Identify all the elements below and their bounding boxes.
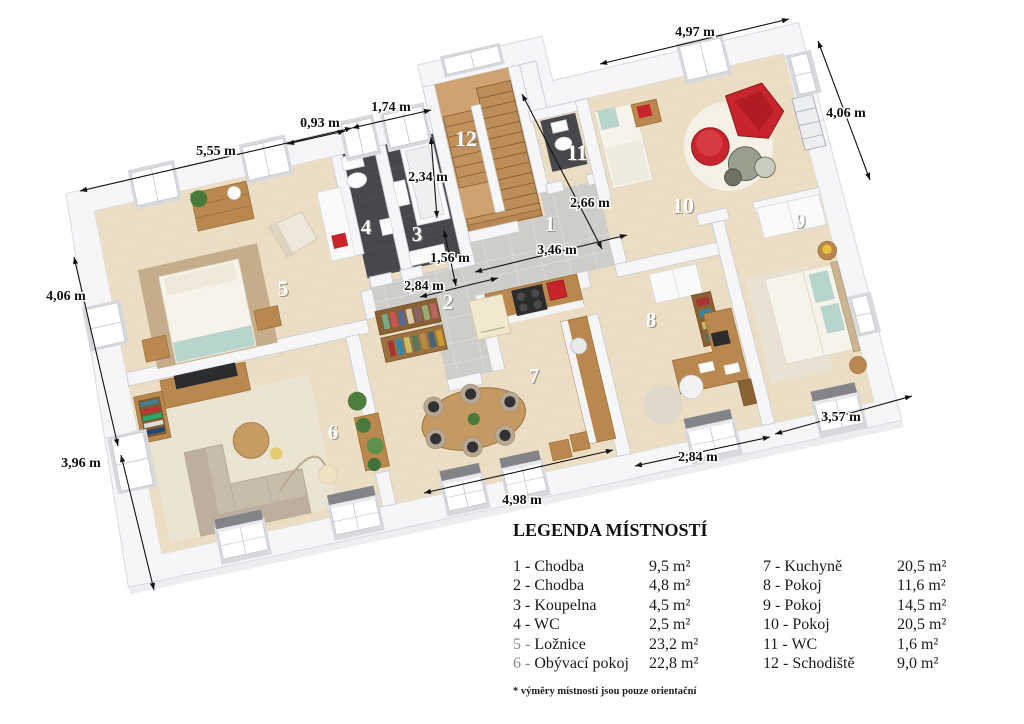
svg-text:14,5 m²: 14,5 m² bbox=[897, 597, 946, 614]
svg-text:8: 8 bbox=[646, 308, 657, 332]
svg-text:2,34 m: 2,34 m bbox=[408, 170, 448, 185]
svg-text:20,5 m²: 20,5 m² bbox=[897, 558, 946, 575]
svg-text:2,66 m: 2,66 m bbox=[570, 196, 610, 211]
svg-text:LEGENDA MÍSTNOSTÍ: LEGENDA MÍSTNOSTÍ bbox=[513, 519, 708, 540]
svg-text:11 - WC: 11 - WC bbox=[763, 636, 817, 653]
svg-text:6 - Obývací pokoj: 6 - Obývací pokoj bbox=[513, 655, 629, 672]
svg-text:12 - Schodiště: 12 - Schodiště bbox=[763, 655, 855, 672]
svg-text:7 - Kuchyně: 7 - Kuchyně bbox=[763, 558, 842, 575]
svg-text:2,5 m²: 2,5 m² bbox=[649, 616, 690, 633]
svg-text:0,93 m: 0,93 m bbox=[300, 116, 340, 131]
svg-text:20,5 m²: 20,5 m² bbox=[897, 616, 946, 633]
svg-text:9 - Pokoj: 9 - Pokoj bbox=[763, 597, 822, 614]
svg-text:6: 6 bbox=[328, 420, 339, 444]
svg-text:1,56 m: 1,56 m bbox=[430, 251, 470, 266]
svg-text:7: 7 bbox=[529, 364, 540, 388]
svg-text:9,5 m²: 9,5 m² bbox=[649, 558, 690, 575]
svg-text:10: 10 bbox=[672, 193, 694, 218]
svg-text:1,6 m²: 1,6 m² bbox=[897, 636, 938, 653]
svg-text:1,74 m: 1,74 m bbox=[371, 100, 411, 115]
svg-text:12: 12 bbox=[455, 126, 477, 151]
svg-text:4,06 m: 4,06 m bbox=[46, 289, 86, 304]
svg-text:3,96 m: 3,96 m bbox=[61, 456, 101, 471]
svg-text:5 - Ložnice: 5 - Ložnice bbox=[513, 636, 586, 653]
svg-text:23,2 m²: 23,2 m² bbox=[649, 636, 698, 653]
svg-text:2,84 m: 2,84 m bbox=[678, 450, 718, 465]
svg-text:4: 4 bbox=[361, 215, 372, 239]
svg-text:3 - Koupelna: 3 - Koupelna bbox=[513, 597, 597, 614]
svg-text:2,84 m: 2,84 m bbox=[404, 279, 444, 294]
svg-text:2 - Chodba: 2 - Chodba bbox=[513, 577, 584, 594]
svg-text:3: 3 bbox=[412, 222, 423, 246]
svg-text:9: 9 bbox=[795, 209, 806, 233]
svg-text:4,97 m: 4,97 m bbox=[675, 25, 715, 40]
svg-text:3,46 m: 3,46 m bbox=[537, 243, 577, 258]
svg-text:4,5 m²: 4,5 m² bbox=[649, 597, 690, 614]
svg-text:11,6 m²: 11,6 m² bbox=[897, 577, 946, 594]
svg-text:2: 2 bbox=[443, 290, 454, 314]
svg-text:22,8 m²: 22,8 m² bbox=[649, 655, 698, 672]
svg-text:4 - WC: 4 - WC bbox=[513, 616, 560, 633]
svg-text:9,0 m²: 9,0 m² bbox=[897, 655, 938, 672]
svg-text:5,55 m: 5,55 m bbox=[196, 144, 236, 159]
svg-text:5: 5 bbox=[278, 276, 289, 301]
svg-text:10 - Pokoj: 10 - Pokoj bbox=[763, 616, 830, 633]
svg-text:4,98 m: 4,98 m bbox=[502, 493, 542, 508]
svg-text:11: 11 bbox=[567, 140, 588, 165]
svg-text:4,8 m²: 4,8 m² bbox=[649, 577, 690, 594]
svg-text:* výměry místností jsou pouze: * výměry místností jsou pouze orientační bbox=[513, 686, 698, 697]
svg-text:4,06 m: 4,06 m bbox=[826, 106, 866, 121]
svg-text:1: 1 bbox=[545, 212, 556, 236]
svg-text:1 - Chodba: 1 - Chodba bbox=[513, 558, 584, 575]
svg-text:3,57 m: 3,57 m bbox=[821, 410, 861, 425]
svg-text:8 - Pokoj: 8 - Pokoj bbox=[763, 577, 822, 594]
